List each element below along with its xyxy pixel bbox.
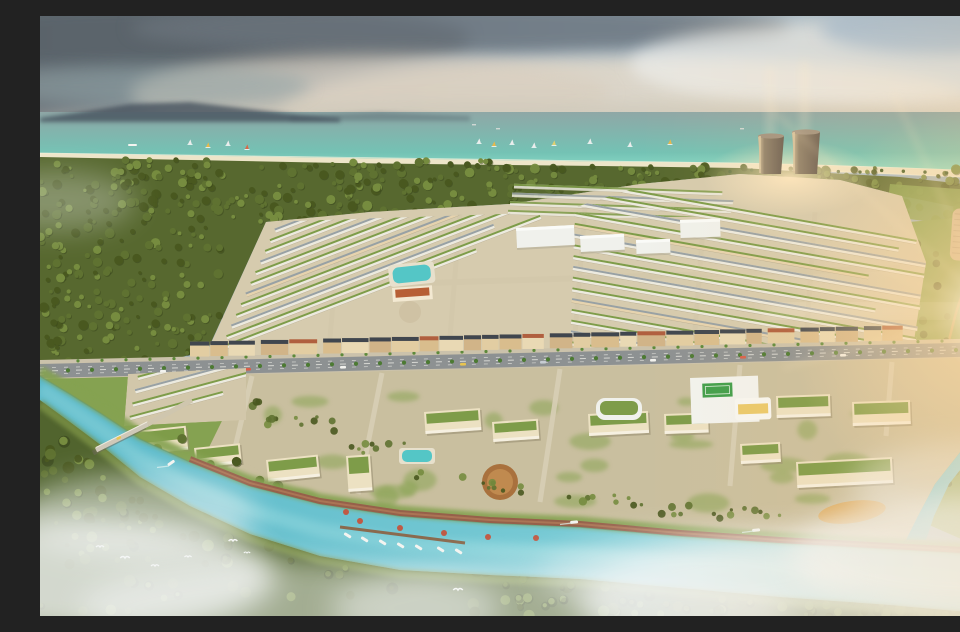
flowering-tree (357, 518, 363, 524)
tree (41, 470, 48, 477)
flowering-tree (397, 525, 403, 531)
white-building (516, 225, 575, 250)
white-building (580, 234, 625, 254)
flowering-tree (343, 509, 349, 515)
sun-flare (640, 16, 960, 616)
flowering-tree (485, 534, 491, 540)
central-plaza (399, 301, 421, 323)
car (460, 363, 466, 366)
apartment-block (424, 408, 483, 436)
flowering-tree (533, 535, 539, 541)
tree (45, 449, 56, 460)
swimming-pool (402, 450, 432, 462)
tree (49, 467, 57, 475)
flowering-tree (441, 530, 447, 536)
apartment-block (346, 454, 374, 494)
distant-ship (472, 124, 476, 125)
car (340, 366, 346, 369)
distant-ship (496, 128, 500, 129)
apartment-block (492, 419, 541, 444)
tree (74, 455, 82, 463)
aerial-render (40, 16, 960, 616)
yacht (128, 144, 137, 146)
car (540, 361, 546, 364)
render-canvas (40, 16, 960, 616)
tree (84, 459, 94, 469)
